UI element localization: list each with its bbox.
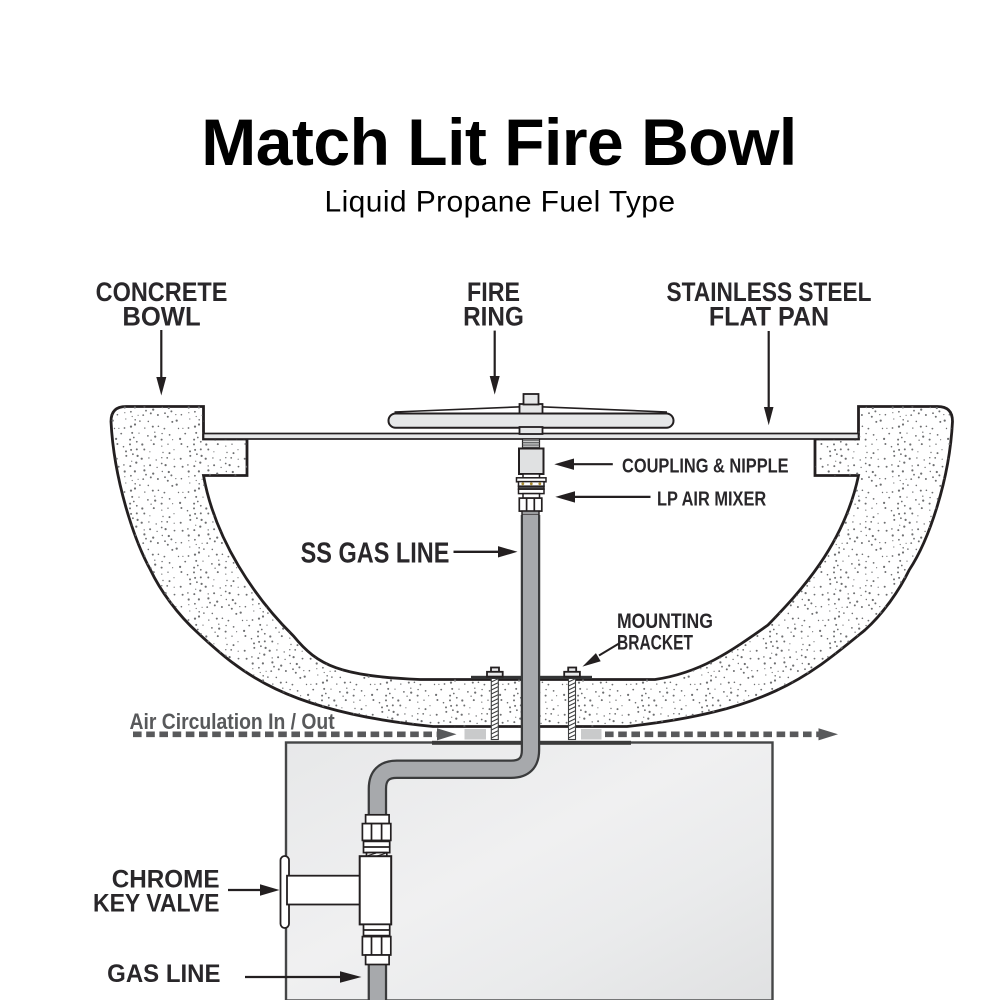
svg-text:COUPLING & NIPPLE: COUPLING & NIPPLE	[622, 454, 789, 477]
svg-text:RING: RING	[463, 302, 524, 331]
svg-text:GAS LINE: GAS LINE	[107, 960, 220, 988]
svg-text:LP AIR MIXER: LP AIR MIXER	[657, 487, 767, 510]
svg-text:Air Circulation In / Out: Air Circulation In / Out	[130, 709, 335, 734]
svg-text:KEY VALVE: KEY VALVE	[93, 890, 220, 918]
svg-text:FLAT PAN: FLAT PAN	[709, 301, 829, 332]
svg-text:BOWL: BOWL	[122, 301, 200, 332]
svg-text:BRACKET: BRACKET	[617, 630, 694, 654]
svg-text:SS GAS LINE: SS GAS LINE	[301, 536, 450, 569]
svg-text:Match Lit Fire Bowl: Match Lit Fire Bowl	[201, 105, 797, 179]
svg-text:Liquid Propane Fuel Type: Liquid Propane Fuel Type	[325, 186, 676, 219]
